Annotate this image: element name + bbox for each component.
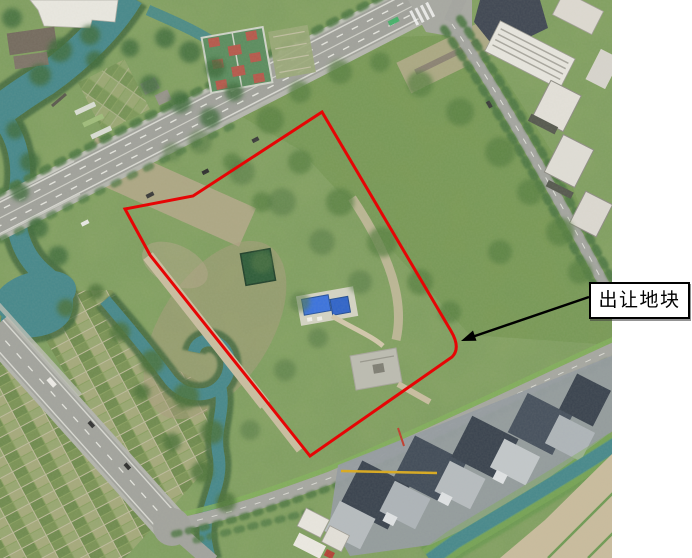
annotation-label: 出让地块 [589, 282, 690, 319]
annotation-label-text: 出让地块 [598, 291, 680, 310]
image-grain [0, 0, 612, 558]
satellite-photo [0, 0, 692, 558]
photo-area [0, 0, 622, 558]
figure-canvas: 出让地块 [0, 0, 692, 558]
